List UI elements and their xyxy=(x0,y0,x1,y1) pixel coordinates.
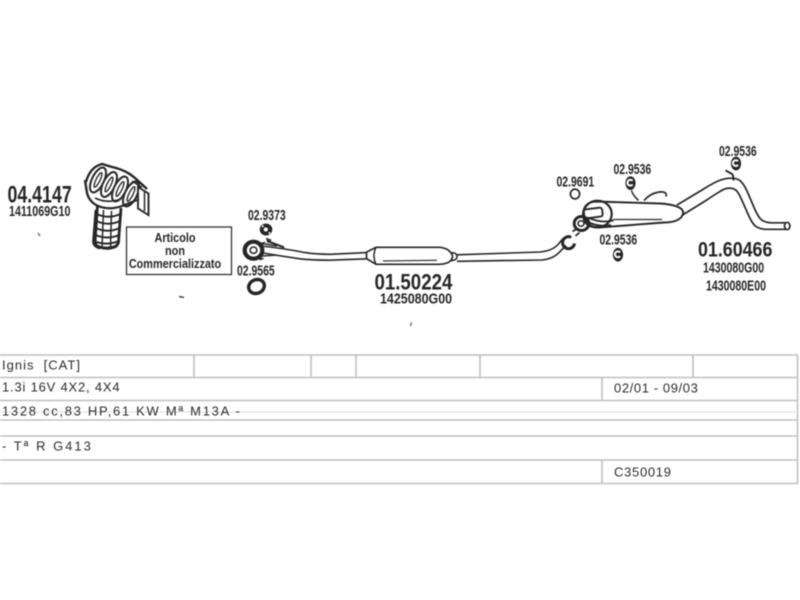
svg-text:1425080G00: 1425080G00 xyxy=(380,291,452,307)
svg-text:C350019: C350019 xyxy=(614,465,672,480)
svg-text:02.9536: 02.9536 xyxy=(719,143,757,159)
svg-text:- Tª R G413: - Tª R G413 xyxy=(2,439,93,454)
svg-text:02.9691: 02.9691 xyxy=(557,174,595,190)
svg-text:02/01 - 09/03: 02/01 - 09/03 xyxy=(614,381,698,396)
svg-text:1411069G10: 1411069G10 xyxy=(9,202,70,219)
svg-text:1328 cc,83 HP,61 KW Mª M13A -: 1328 cc,83 HP,61 KW Mª M13A - xyxy=(2,404,242,419)
svg-text:02.9536: 02.9536 xyxy=(600,232,638,248)
svg-text:Commercializzato: Commercializzato xyxy=(129,257,221,271)
svg-text:non: non xyxy=(165,244,185,258)
svg-text:1430080E00: 1430080E00 xyxy=(706,278,766,294)
svg-text:02.9373: 02.9373 xyxy=(248,207,286,223)
svg-text:1430080G00: 1430080G00 xyxy=(703,260,764,276)
svg-text:02.9536: 02.9536 xyxy=(614,161,652,177)
svg-text:01.60466: 01.60466 xyxy=(698,238,772,262)
svg-text:Articolo: Articolo xyxy=(154,231,195,245)
svg-text:1.3i 16V 4X2, 4X4: 1.3i 16V 4X2, 4X4 xyxy=(2,380,120,395)
svg-text:Ignis [CAT]: Ignis [CAT] xyxy=(2,358,81,373)
svg-text:02.9565: 02.9565 xyxy=(237,263,275,279)
